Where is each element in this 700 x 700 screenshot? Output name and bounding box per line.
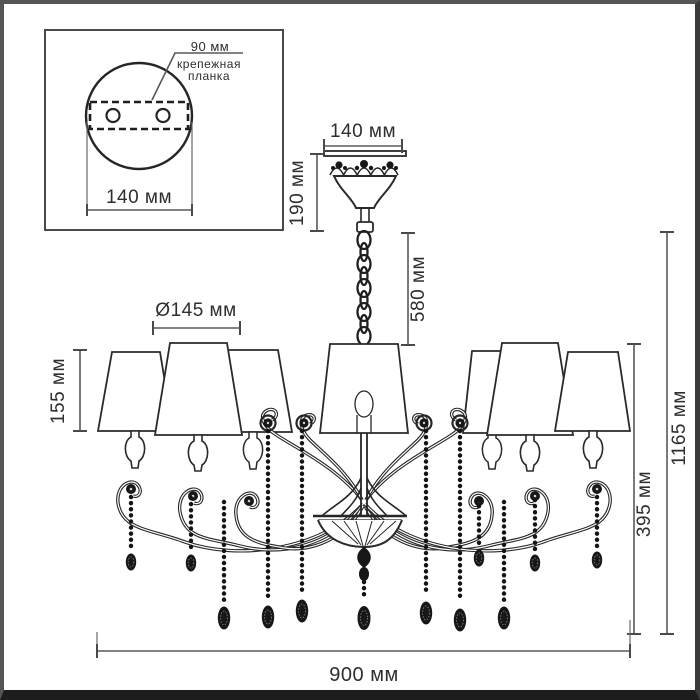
bracket-label-line2: планка bbox=[188, 69, 230, 83]
crystal-drop bbox=[530, 555, 540, 572]
shade-holder bbox=[125, 431, 144, 468]
crystal-drop bbox=[474, 550, 484, 567]
plate-width-label: 90 мм bbox=[191, 39, 229, 54]
shade-center bbox=[320, 344, 408, 433]
dimension-shade-diameter: Ø145 мм bbox=[153, 300, 240, 335]
bead-strand bbox=[262, 431, 274, 629]
chandelier-drawing: 90 мм крепежная планка 140 мм bbox=[0, 0, 700, 700]
bead-strand bbox=[592, 497, 602, 569]
shade-diameter-label: Ø145 мм bbox=[155, 300, 236, 321]
total-height-label: 1165 мм bbox=[669, 390, 690, 466]
dimension-canopy-diameter: 140 мм bbox=[324, 121, 402, 153]
bead-strand bbox=[420, 431, 432, 625]
canopy-ornament-band bbox=[330, 168, 398, 175]
canopy-diameter-label: 140 мм bbox=[330, 121, 396, 142]
shade-holder bbox=[520, 435, 539, 471]
canopy-plate bbox=[324, 151, 406, 156]
shade-holder bbox=[482, 433, 501, 469]
crystal-drop bbox=[218, 607, 230, 630]
mounting-inset-panel: 90 мм крепежная планка 140 мм bbox=[45, 30, 283, 230]
shade-height-label: 155 мм bbox=[48, 358, 69, 424]
crystal-drop bbox=[186, 555, 196, 572]
bowl-finial bbox=[357, 547, 371, 568]
crystal-drop bbox=[358, 606, 371, 630]
bead-strand bbox=[218, 502, 230, 630]
bead-strand bbox=[358, 582, 371, 630]
crystal-drop bbox=[498, 607, 510, 630]
bead-strand bbox=[454, 431, 466, 632]
crystal-drop bbox=[262, 606, 274, 629]
crystal-drop bbox=[420, 602, 432, 625]
dimension-chain-length: 580 мм bbox=[401, 233, 429, 345]
suspension-chain bbox=[358, 231, 371, 345]
dimension-total-height: 1165 мм bbox=[660, 232, 690, 634]
canopy bbox=[324, 151, 406, 232]
inset-base-diameter-label: 140 мм bbox=[106, 187, 172, 208]
total-width-label: 900 мм bbox=[329, 664, 398, 686]
dimension-shade-height: 155 мм bbox=[48, 350, 87, 431]
dimension-body-height: 395 мм bbox=[627, 344, 655, 634]
dimension-canopy-height: 190 мм bbox=[287, 154, 324, 231]
body-height-label: 395 мм bbox=[634, 471, 655, 537]
crystal-drop bbox=[126, 554, 136, 571]
canopy-bell bbox=[334, 176, 396, 208]
shade-left-2 bbox=[155, 343, 242, 471]
crystal-drop bbox=[454, 609, 466, 632]
canopy-height-label: 190 мм bbox=[287, 160, 308, 226]
catalog-dimension-sheet: 90 мм крепежная планка 140 мм bbox=[0, 0, 700, 700]
shade-right-3 bbox=[555, 352, 630, 468]
bead-strand bbox=[296, 431, 308, 623]
finial-crystal-bead bbox=[359, 567, 369, 581]
bead-strand bbox=[126, 497, 136, 571]
crystal-drop bbox=[592, 552, 602, 569]
shade-holder bbox=[583, 431, 602, 468]
shade-holder bbox=[243, 432, 262, 469]
bead-strand bbox=[498, 502, 510, 630]
shade-holder bbox=[188, 435, 207, 471]
chain-length-label: 580 мм bbox=[408, 256, 429, 322]
crystal-drop bbox=[296, 600, 308, 623]
